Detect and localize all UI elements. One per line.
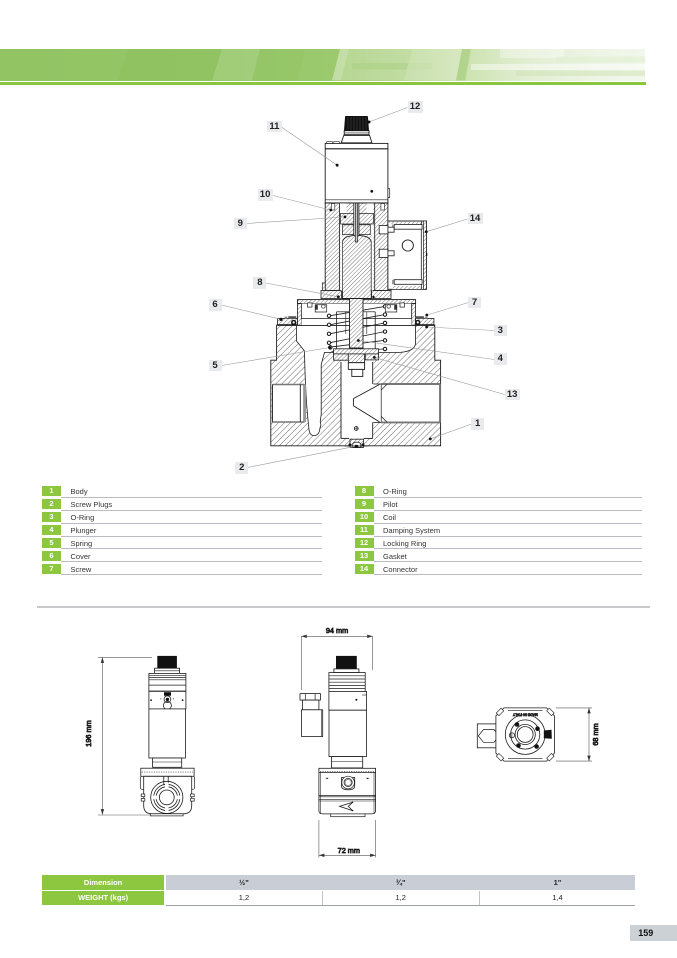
svg-text:94 mm: 94 mm bbox=[326, 626, 348, 635]
svg-text:MADE IN ITALY: MADE IN ITALY bbox=[512, 713, 538, 717]
svg-text:196 mm: 196 mm bbox=[84, 720, 93, 746]
svg-text:68 mm: 68 mm bbox=[591, 723, 600, 745]
svg-text:72 mm: 72 mm bbox=[338, 846, 360, 855]
